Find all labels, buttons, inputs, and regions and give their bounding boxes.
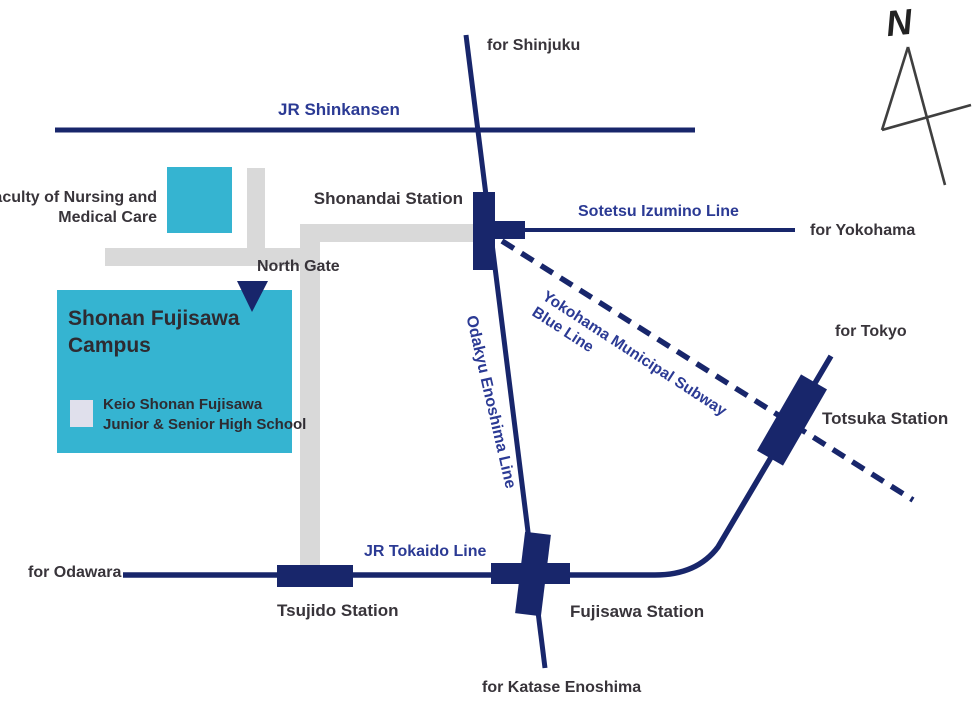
- road-to-shonandai: [300, 224, 476, 242]
- tsujido-station-label: Tsujido Station: [277, 601, 399, 621]
- fujisawa-marker-horizontal: [491, 563, 570, 584]
- totsuka-station-marker: [757, 374, 827, 465]
- dest-shinjuku-label: for Shinjuku: [487, 37, 580, 55]
- sotetsu-line-label: Sotetsu Izumino Line: [578, 203, 739, 221]
- fujisawa-station-marker: [491, 532, 570, 617]
- campus-title-line1: Shonan Fujisawa: [68, 305, 240, 332]
- faculty-building-block: [167, 167, 232, 233]
- dest-yokohama-label: for Yokohama: [810, 222, 915, 240]
- keio-school-label-line2: Junior & Senior High School: [103, 415, 306, 435]
- totsuka-station-label: Totsuka Station: [822, 409, 948, 429]
- access-map: N for Shinjuku for Yokohama for Tokyo fo…: [0, 0, 980, 725]
- tokaido-line-label: JR Tokaido Line: [364, 543, 486, 561]
- shonandai-marker-vertical: [473, 192, 495, 270]
- tsujido-station-marker: [277, 565, 353, 587]
- compass-left-edge: [882, 47, 908, 130]
- campus-title: Shonan Fujisawa Campus: [68, 305, 240, 360]
- subway-blue-line-path: [502, 241, 913, 500]
- compass-arrow-icon: [882, 47, 971, 185]
- compass-cross-edge: [882, 105, 971, 130]
- faculty-label-line2: Medical Care: [0, 208, 157, 228]
- keio-school-label: Keio Shonan Fujisawa Junior & Senior Hig…: [103, 395, 306, 434]
- faculty-label-line1: Faculty of Nursing and: [0, 188, 157, 208]
- shonandai-station-label: Shonandai Station: [314, 189, 463, 209]
- compass-north-label: N: [884, 1, 914, 45]
- shonandai-marker-tab: [495, 221, 525, 239]
- campus-title-line2: Campus: [68, 332, 240, 359]
- faculty-label: Faculty of Nursing and Medical Care: [0, 188, 157, 227]
- shinkansen-line-label: JR Shinkansen: [278, 100, 400, 120]
- shonandai-station-marker: [473, 192, 525, 270]
- compass-long-edge: [908, 47, 945, 185]
- fujisawa-station-label: Fujisawa Station: [570, 602, 704, 622]
- keio-school-label-line1: Keio Shonan Fujisawa: [103, 395, 306, 415]
- north-gate-label: North Gate: [257, 258, 340, 276]
- dest-tokyo-label: for Tokyo: [835, 323, 907, 341]
- dest-katase-enoshima-label: for Katase Enoshima: [482, 679, 641, 697]
- keio-school-block: [70, 400, 93, 427]
- dest-odawara-label: for Odawara: [28, 564, 121, 582]
